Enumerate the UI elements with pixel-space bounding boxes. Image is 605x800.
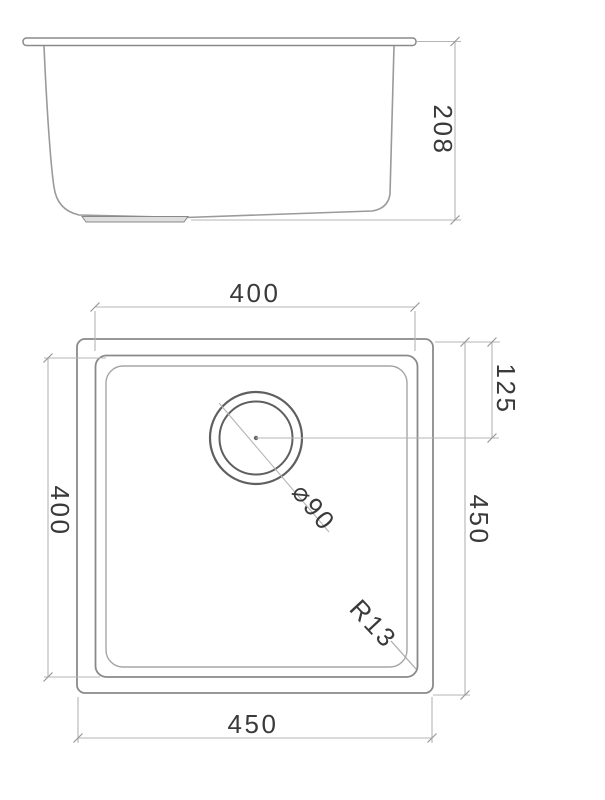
side-drain-foot — [82, 217, 188, 223]
depth-dimension-label: 208 — [428, 105, 458, 156]
dimension-left-height: 400 — [44, 354, 107, 682]
plan-view: ⌀90 R13 400 — [44, 278, 522, 743]
dimension-depth: 208 — [191, 37, 461, 225]
dimension-drain-offset: 125 — [256, 338, 521, 443]
dimension-top-width: 400 — [91, 278, 420, 351]
drain-offset-label: 125 — [491, 364, 521, 415]
dimension-corner-radius: R13 — [344, 593, 416, 669]
side-view: 208 — [23, 37, 461, 225]
top-width-label: 400 — [230, 278, 281, 308]
bottom-width-label: 450 — [228, 709, 279, 739]
side-rim-flange — [23, 38, 416, 46]
drain-diameter-label: ⌀90 — [286, 478, 342, 537]
left-height-label: 400 — [45, 486, 75, 537]
dimension-bottom-width: 450 — [74, 697, 437, 743]
right-height-label: 450 — [464, 495, 494, 546]
technical-drawing-canvas: 208 ⌀90 R13 — [0, 0, 605, 800]
dimension-right-height: 450 — [433, 338, 494, 700]
radius-leader-line — [391, 641, 416, 669]
side-bowl-outline — [44, 46, 394, 218]
sink-drawing: 208 ⌀90 R13 — [0, 0, 605, 800]
